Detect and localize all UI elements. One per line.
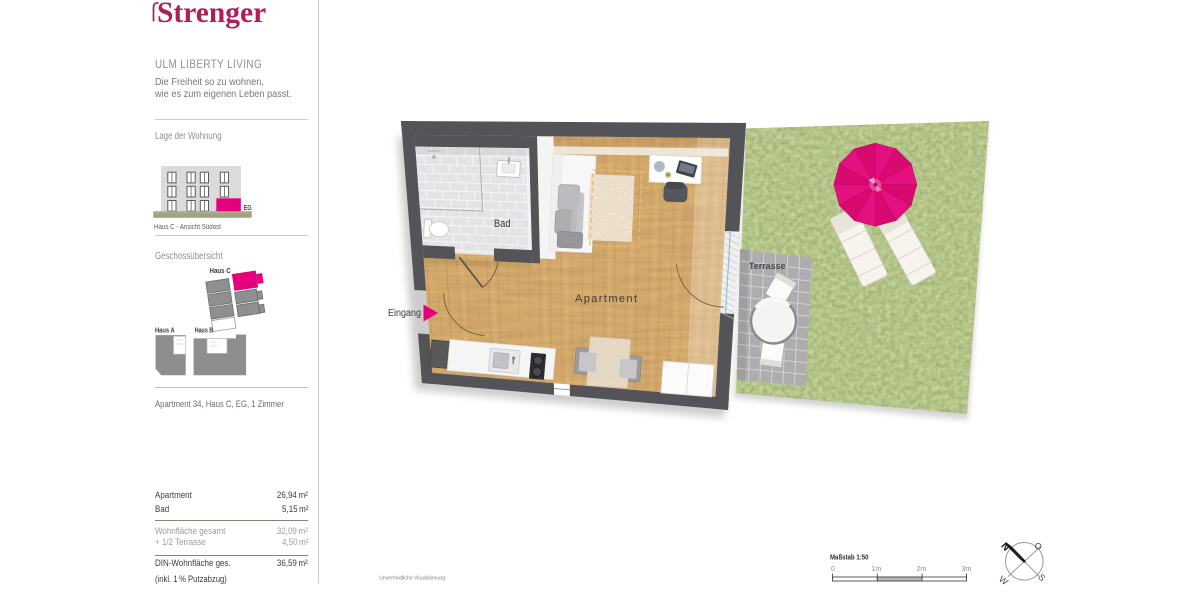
svg-text:Maßstab 1:50: Maßstab 1:50 xyxy=(830,553,869,562)
svg-text:Bad: Bad xyxy=(494,218,511,230)
svg-text:2m: 2m xyxy=(917,566,927,573)
svg-text:Eingang: Eingang xyxy=(388,308,421,319)
svg-text:Apartment: Apartment xyxy=(575,293,637,305)
svg-text:0: 0 xyxy=(831,566,835,573)
svg-text:Terrasse: Terrasse xyxy=(749,261,786,272)
svg-text:1m: 1m xyxy=(872,566,882,573)
svg-text:O: O xyxy=(1033,540,1044,552)
svg-text:N: N xyxy=(998,541,1011,554)
svg-text:S: S xyxy=(1036,572,1047,583)
svg-text:Unverbindliche Visualisierung: Unverbindliche Visualisierung xyxy=(379,576,445,582)
svg-text:3m: 3m xyxy=(962,566,972,573)
